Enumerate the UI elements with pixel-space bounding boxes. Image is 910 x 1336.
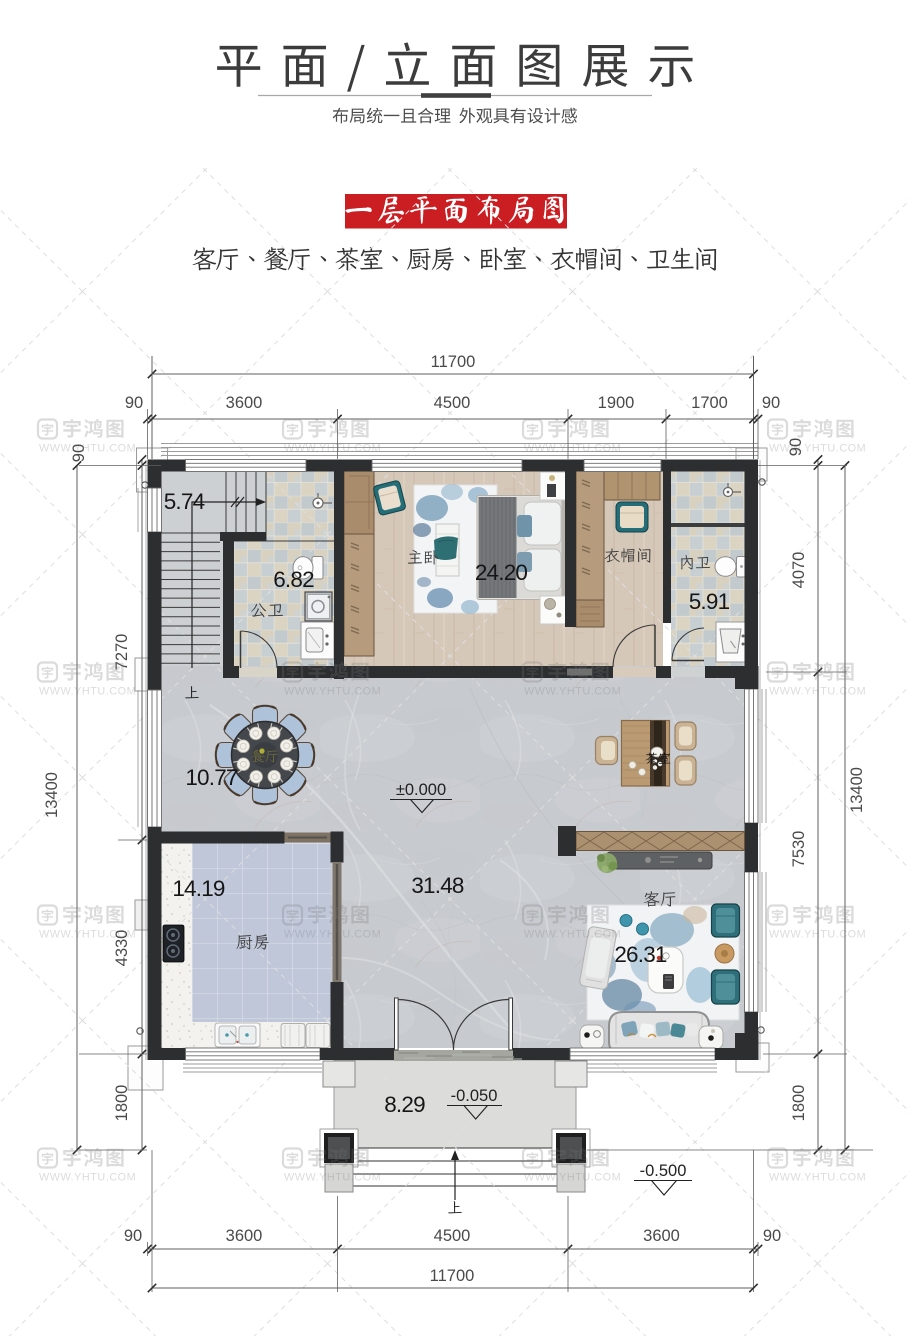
svg-text:90: 90 [763,1227,781,1245]
svg-text:3600: 3600 [226,1227,263,1245]
svg-text:3600: 3600 [643,1227,680,1245]
svg-text:1800: 1800 [790,1085,808,1122]
svg-text:10.77: 10.77 [185,765,238,790]
svg-text:26.31: 26.31 [614,942,667,967]
svg-text:13400: 13400 [848,767,866,813]
svg-text:4070: 4070 [790,552,808,589]
svg-text:1900: 1900 [598,394,635,412]
svg-text:31.48: 31.48 [411,873,464,898]
svg-text:90: 90 [125,394,143,412]
svg-text:6.82: 6.82 [273,567,314,592]
svg-text:1800: 1800 [113,1085,131,1122]
svg-text:90: 90 [762,394,780,412]
svg-text:4500: 4500 [434,394,471,412]
svg-text:-0.500: -0.500 [640,1162,687,1180]
svg-text:24.20: 24.20 [475,560,528,585]
svg-text:1700: 1700 [691,394,728,412]
svg-text:11700: 11700 [430,1267,475,1285]
svg-text:±0.000: ±0.000 [396,781,446,799]
svg-text:7530: 7530 [790,831,808,868]
svg-text:11700: 11700 [431,353,476,371]
svg-text:-0.050: -0.050 [451,1087,498,1105]
svg-text:5.91: 5.91 [689,589,730,614]
svg-text:14.19: 14.19 [172,876,225,901]
svg-text:5.74: 5.74 [164,489,205,514]
svg-text:4500: 4500 [434,1227,471,1245]
svg-text:90: 90 [124,1227,142,1245]
svg-text:3600: 3600 [226,394,263,412]
svg-text:8.29: 8.29 [384,1092,425,1117]
svg-text:13400: 13400 [43,772,61,818]
